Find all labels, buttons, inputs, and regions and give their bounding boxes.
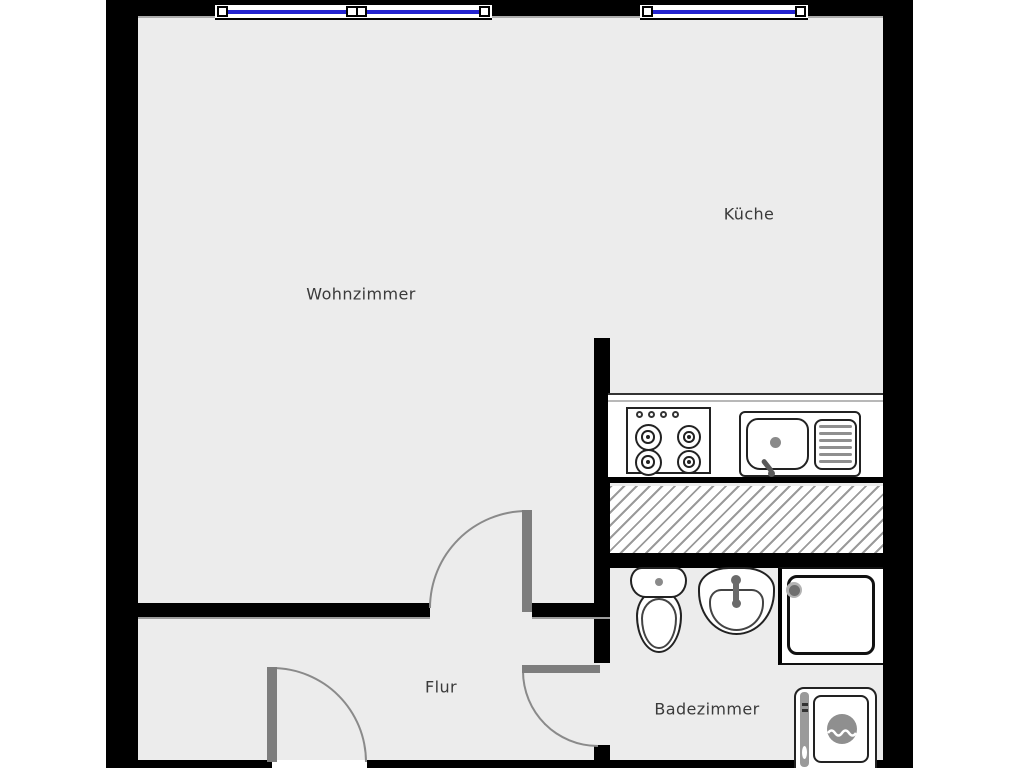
washing-machine [794,687,877,768]
shower [778,567,883,665]
room-label-badezimmer: Badezimmer [654,700,759,719]
door-leaf-entrance [267,667,277,762]
stove-knob [648,411,655,418]
kitchen-sink-unit [739,411,861,477]
washbasin-faucet-head [731,575,741,585]
window-glass-line [652,10,796,14]
wall-living-flur-left [138,603,430,619]
wall-living-flur-right [532,603,610,619]
window-kitchen [640,3,808,20]
sink-faucet-knob [768,470,775,477]
floor-plan: Wohnzimmer Küche Flur Badezimmer [0,0,1024,768]
burner-icon [677,450,701,474]
stove-knob [672,411,679,418]
window-frame-bracket [479,6,490,17]
wall-kitchen-bath [610,553,883,568]
toilet-tank [630,567,687,598]
stove-knob [660,411,667,418]
washing-machine-door [813,695,869,763]
panel-tick [802,703,808,706]
burner-icon [635,424,662,451]
door-leaf-living [522,510,532,612]
room-label-kueche: Küche [724,205,775,224]
hatched-shaft [610,486,883,555]
wall-left [106,0,138,768]
apartment-floor [138,13,883,760]
wall-right [883,0,913,768]
window-mullion-divider [356,8,358,15]
window-frame-bracket [217,6,228,17]
window-living-room [215,3,492,20]
toilet-flush-button [655,578,663,586]
burner-icon [677,425,701,449]
toilet-bowl-inner [641,598,677,649]
window-mullion [346,6,367,17]
wall-bottom-left [106,760,272,768]
wall-flur-bath-lower [594,745,610,768]
washing-machine-drum-icon [824,711,860,747]
washbasin-faucet-base [732,599,741,608]
counter-edge-line [608,400,883,402]
room-label-wohnzimmer: Wohnzimmer [306,285,415,304]
window-frame-bracket [642,6,653,17]
door-leaf-bathroom [522,665,600,673]
shower-drain [789,585,800,596]
stove-knob [636,411,643,418]
window-frame-bracket [795,6,806,17]
stove [626,407,711,474]
panel-handle [802,746,807,759]
burner-icon [635,449,662,476]
panel-tick [802,709,808,712]
sink-drainboard [814,419,857,470]
room-label-flur: Flur [425,678,457,697]
sink-drain [770,437,781,448]
